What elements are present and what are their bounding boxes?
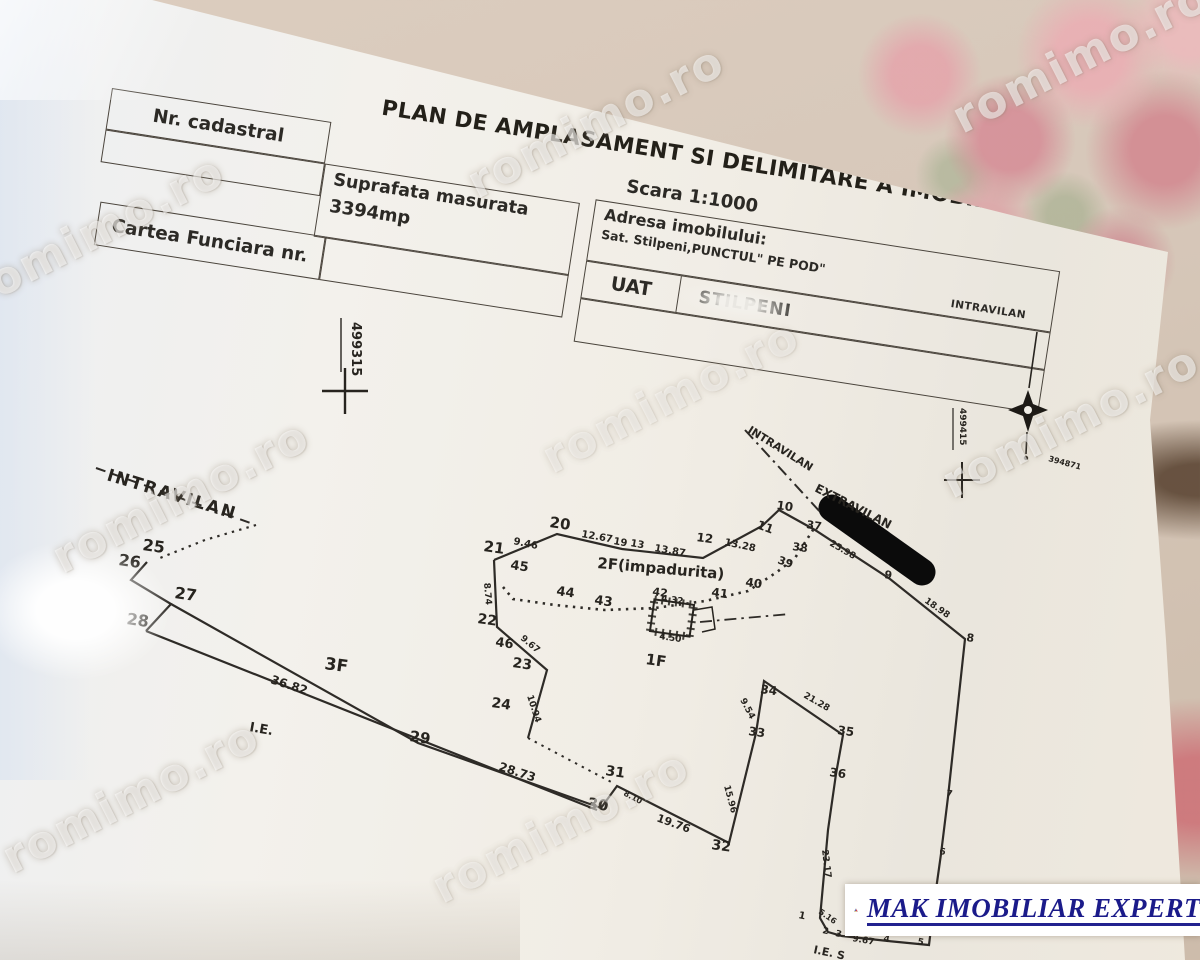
- plan-label: 2: [821, 926, 829, 937]
- plan-label: 44: [555, 584, 575, 601]
- plan-label: 394871: [1047, 454, 1082, 471]
- plan-label: 40: [745, 575, 763, 591]
- plan-label: 4.50: [659, 632, 682, 645]
- plan-label: 9: [884, 568, 893, 582]
- plan-label: 32: [710, 837, 732, 856]
- boundary-line: [494, 560, 547, 738]
- shadow-bottom: [0, 880, 520, 960]
- plan-label: 13: [629, 538, 645, 551]
- photo-of-cadastral-plan: { "document": { "title": "PLAN DE AMPLAS…: [0, 0, 1200, 960]
- glare-left-strip: [0, 0, 95, 780]
- carte-funciara-label: Cartea Funciara nr.: [110, 215, 309, 266]
- plan-label: 33: [748, 724, 766, 740]
- plan-label: 5.16: [817, 907, 839, 926]
- boundary-line: [700, 614, 790, 622]
- boundary-line: [160, 525, 256, 558]
- plan-label: 8: [966, 631, 975, 645]
- plan-label: 7: [946, 789, 954, 800]
- plan-label: 36: [829, 765, 847, 781]
- plan-label: 42: [652, 585, 669, 600]
- plan-label: 43: [593, 593, 613, 610]
- glare-top-left: [0, 0, 260, 100]
- plan-label: 12.67: [580, 529, 613, 545]
- plan-label: 3: [834, 929, 842, 940]
- plan-label: 41: [711, 585, 729, 601]
- building-step: [694, 607, 715, 632]
- logo-triangle-icon: [854, 889, 858, 931]
- plan-label: 12: [696, 530, 714, 546]
- plan-label: 20: [548, 513, 571, 534]
- building-outline: [650, 599, 694, 636]
- paper-sheet: PLAN DE AMPLASAMENT SI DELIMITARE A IMOB…: [0, 0, 1200, 960]
- plan-label: 9.67: [518, 634, 541, 656]
- carte-funciara-box: Cartea Funciara nr.: [94, 202, 326, 280]
- plan-label: 2F(impadurita): [597, 554, 725, 583]
- plan-label: 31: [604, 763, 626, 782]
- plan-label: 29: [408, 727, 431, 748]
- plan-label: 34: [760, 682, 778, 698]
- plan-label: 36.82: [269, 673, 309, 698]
- plan-label: 13.87: [653, 543, 686, 559]
- redaction-bar: [832, 508, 922, 572]
- logo-text: MAK IMOBILIAR EXPERT: [867, 894, 1200, 926]
- plan-label: 23.17: [819, 849, 832, 878]
- boundary-line: [131, 562, 171, 631]
- boundary-line: [503, 530, 813, 610]
- plan-label: 13.28: [723, 537, 756, 554]
- glare-flash-spot: [0, 540, 170, 680]
- boundary-line: [171, 510, 965, 945]
- plan-label: 24: [490, 695, 512, 714]
- agency-logo: MAK IMOBILIAR EXPERT: [845, 884, 1200, 936]
- header-table: PLAN DE AMPLASAMENT SI DELIMITARE A IMOB…: [72, 88, 1080, 495]
- plan-label: 9.67: [851, 934, 875, 948]
- plan-label: 35: [837, 723, 855, 739]
- plan-label: INTRAVILAN: [105, 466, 240, 525]
- boundary-line: [146, 631, 597, 810]
- plan-label: 1: [797, 910, 806, 922]
- plan-label: I.E.: [248, 720, 274, 739]
- plan-label: EXTRAVILAN: [813, 481, 894, 532]
- plan-label: 3F: [323, 654, 349, 677]
- plan-label: 15.96: [721, 784, 738, 814]
- boundary-line: [528, 738, 613, 783]
- plan-label: 11: [755, 518, 775, 537]
- plan-label: 9.46: [512, 536, 538, 552]
- plan-label: 30: [586, 794, 609, 815]
- plan-label: 21.28: [802, 691, 832, 714]
- plan-label: 4.32: [661, 594, 684, 607]
- plan-label: 18.98: [922, 596, 951, 621]
- plan-label: 5: [916, 937, 924, 948]
- plan-label: 38: [792, 540, 809, 555]
- plan-label: 23: [511, 655, 533, 674]
- plan-label: 39: [776, 554, 795, 571]
- plan-label: 10.94: [524, 694, 542, 724]
- plan-label: 26: [117, 550, 142, 572]
- watermark: romimo.ro: [943, 0, 1200, 144]
- plan-label: 45: [509, 558, 529, 575]
- plan-label: I.E. S: [812, 943, 846, 960]
- plan-label: 28: [125, 609, 150, 631]
- plan-label: 25.98: [828, 539, 858, 562]
- plan-label: 9.54: [737, 697, 756, 721]
- plan-label: 22: [476, 611, 498, 630]
- plan-label: 25: [141, 535, 166, 557]
- plan-label: 19: [612, 536, 628, 549]
- plan-label: 1F: [644, 650, 667, 671]
- boundary-line: [96, 468, 256, 525]
- plan-label: 46: [494, 635, 514, 652]
- plan-label: 28.73: [497, 760, 537, 785]
- plan-label: 8.10: [622, 789, 644, 806]
- plan-label: 19.76: [655, 812, 692, 836]
- plan-label: 27: [173, 583, 198, 605]
- plan-label: 8.74: [481, 582, 493, 605]
- plan-label: 6: [939, 847, 947, 858]
- plan-label: 10: [776, 498, 794, 514]
- plan-label: 21: [482, 537, 505, 558]
- plan-label: 37: [806, 518, 823, 533]
